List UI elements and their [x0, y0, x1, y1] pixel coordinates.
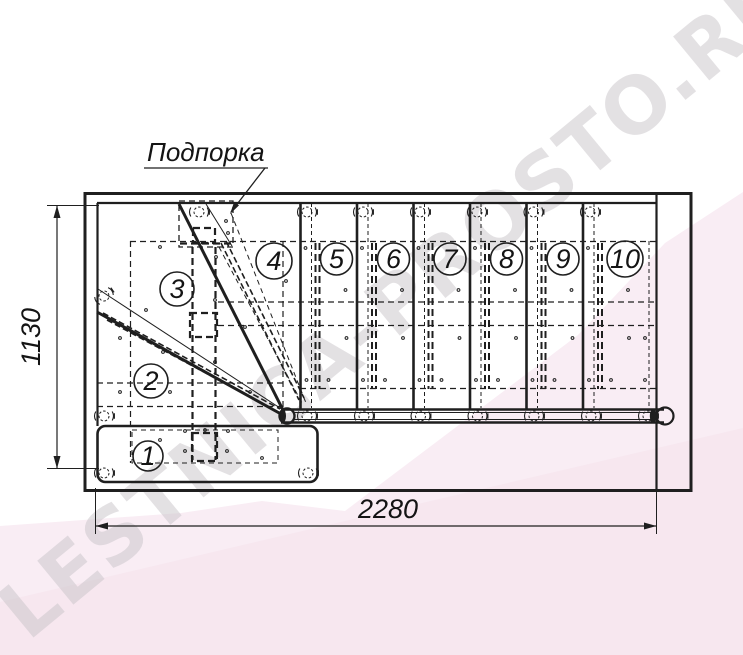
- staircase-plan-screenshot: LESTNICA-PROSTO.RU: [0, 0, 743, 655]
- dimension-height-text: 1130: [16, 308, 46, 366]
- step-number: 8: [499, 244, 514, 274]
- step-number: 6: [386, 244, 402, 274]
- staircase-plan-drawing: LESTNICA-PROSTO.RU: [0, 0, 743, 655]
- dimension-width-text: 2280: [357, 494, 418, 524]
- step-number: 1: [140, 441, 155, 471]
- support-label-text: Подпорка: [147, 137, 265, 167]
- step-number: 9: [555, 244, 570, 274]
- step-number: 4: [266, 246, 281, 276]
- step-balloon: 10: [607, 241, 643, 277]
- step-number: 10: [610, 244, 640, 274]
- step-number: 2: [142, 366, 158, 396]
- step-number: 7: [442, 244, 458, 274]
- step-number: 3: [169, 274, 184, 304]
- step-number: 5: [329, 244, 345, 274]
